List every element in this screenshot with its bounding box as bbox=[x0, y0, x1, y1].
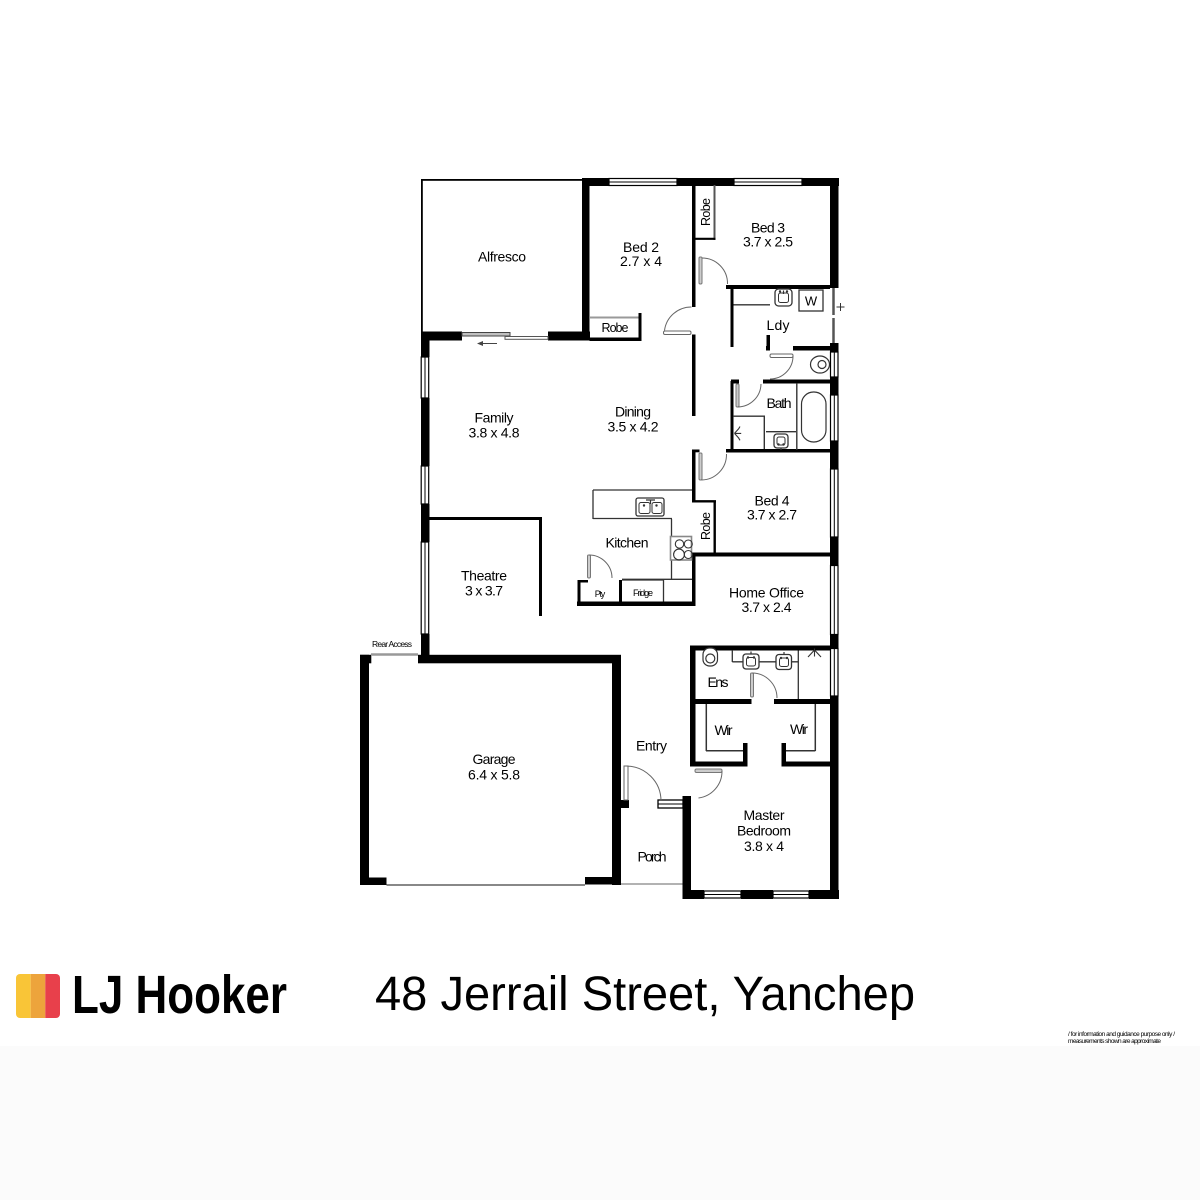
svg-text:Kitchen: Kitchen bbox=[606, 535, 649, 551]
svg-text:Dining: Dining bbox=[615, 404, 651, 420]
svg-text:Fridge: Fridge bbox=[633, 588, 653, 598]
svg-text:LJ Hooker: LJ Hooker bbox=[72, 965, 287, 1025]
svg-text:Bath: Bath bbox=[767, 395, 792, 411]
svg-text:Bedroom: Bedroom bbox=[737, 823, 791, 839]
svg-text:measurements shown are approxi: measurements shown are approximate bbox=[1068, 1038, 1161, 1045]
svg-text:Robe: Robe bbox=[699, 198, 713, 226]
svg-text:Garage: Garage bbox=[473, 751, 516, 767]
svg-text:3.8 x 4.8: 3.8 x 4.8 bbox=[469, 425, 520, 441]
svg-text:3.7 x 2.5: 3.7 x 2.5 bbox=[743, 234, 793, 250]
svg-text:Ens: Ens bbox=[708, 674, 729, 690]
svg-text:Robe: Robe bbox=[699, 512, 713, 540]
svg-text:48 Jerrail Street, Yanchep: 48 Jerrail Street, Yanchep bbox=[375, 968, 915, 1021]
svg-text:Wir: Wir bbox=[790, 721, 808, 737]
svg-text:Ldy: Ldy bbox=[767, 317, 790, 333]
svg-text:3.7 x 2.4: 3.7 x 2.4 bbox=[742, 599, 792, 615]
svg-text:Wir: Wir bbox=[715, 722, 733, 738]
svg-text:3 x 3.7: 3 x 3.7 bbox=[465, 583, 503, 599]
svg-text:Robe: Robe bbox=[602, 321, 629, 335]
svg-text:Entry: Entry bbox=[636, 738, 667, 754]
svg-text:Master: Master bbox=[744, 807, 785, 823]
svg-text:Pty: Pty bbox=[595, 589, 606, 599]
svg-text:Rear Access: Rear Access bbox=[372, 639, 412, 649]
svg-text:2.7 x 4: 2.7 x 4 bbox=[620, 253, 662, 269]
svg-text:W: W bbox=[805, 294, 818, 309]
svg-text:/ for information and guidance: / for information and guidance purpose o… bbox=[1068, 1031, 1175, 1038]
svg-text:6.4 x 5.8: 6.4 x 5.8 bbox=[468, 767, 520, 783]
svg-text:3.5 x 4.2: 3.5 x 4.2 bbox=[608, 419, 659, 435]
svg-text:Alfresco: Alfresco bbox=[478, 249, 526, 265]
svg-text:Porch: Porch bbox=[638, 849, 667, 865]
svg-text:3.7 x 2.7: 3.7 x 2.7 bbox=[747, 507, 797, 523]
svg-text:Theatre: Theatre bbox=[461, 568, 507, 584]
svg-text:3.8 x 4: 3.8 x 4 bbox=[744, 838, 784, 854]
svg-text:Family: Family bbox=[475, 410, 514, 426]
